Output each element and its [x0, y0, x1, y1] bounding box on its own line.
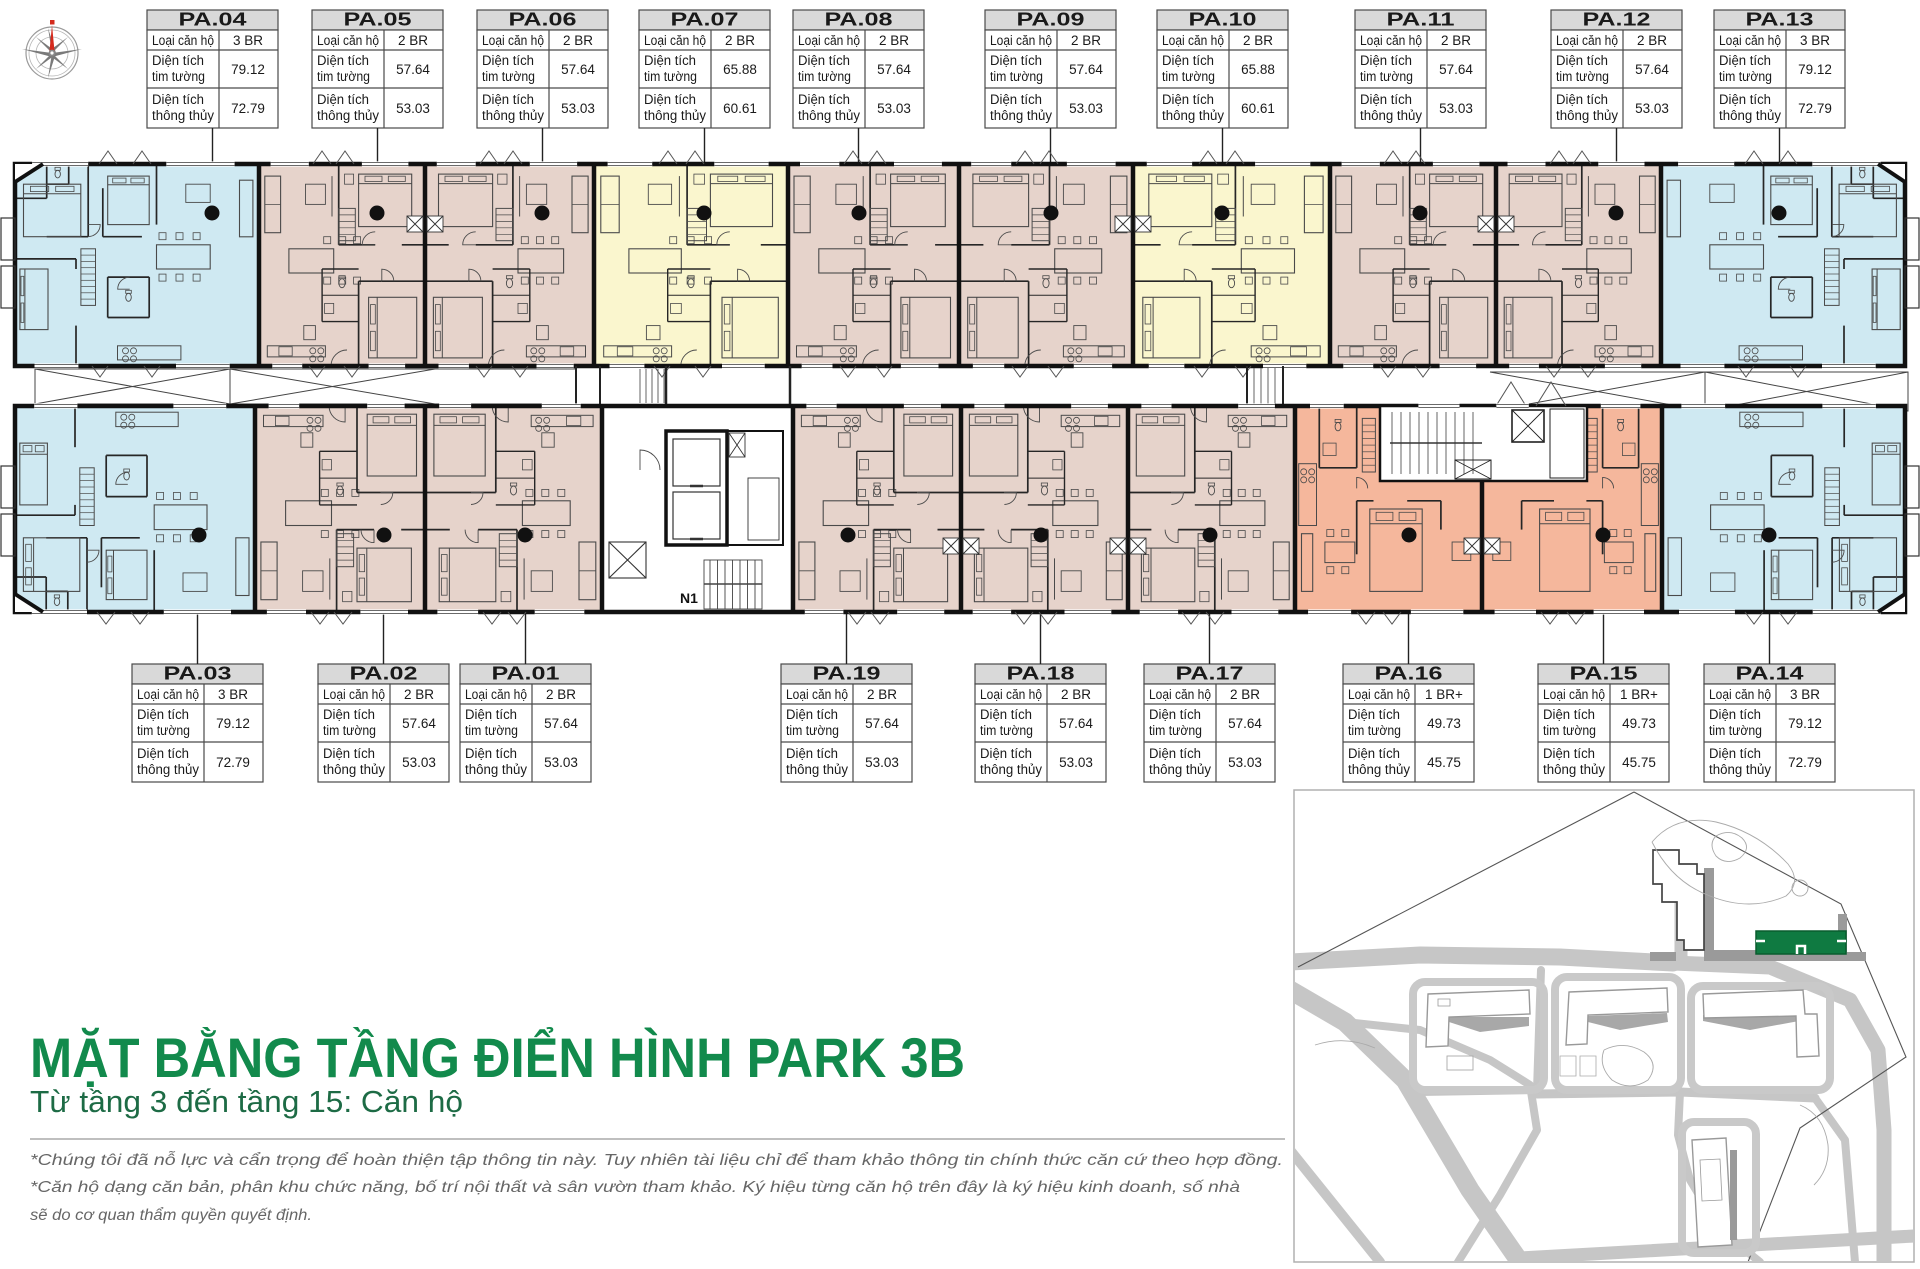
svg-text:Diện tích: Diện tích: [1360, 92, 1412, 107]
svg-text:Loại căn hộ: Loại căn hộ: [323, 687, 385, 702]
svg-text:Diện tích: Diện tích: [1709, 746, 1761, 761]
svg-text:tim tường: tim tường: [798, 69, 851, 84]
svg-text:PA.09: PA.09: [1017, 10, 1085, 30]
svg-text:tim tường: tim tường: [644, 69, 697, 84]
svg-text:2 BR: 2 BR: [404, 687, 434, 702]
svg-text:Loại căn hộ: Loại căn hộ: [1162, 33, 1224, 48]
svg-text:thông thủy: thông thủy: [1719, 108, 1781, 123]
svg-text:72.79: 72.79: [1798, 101, 1832, 116]
svg-text:*Chúng tôi đã nỗ lực và cẩn tr: *Chúng tôi đã nỗ lực và cẩn trọng để hoà…: [30, 1152, 1283, 1169]
svg-text:PA.04: PA.04: [179, 10, 247, 30]
svg-text:Loại căn hộ: Loại căn hộ: [317, 33, 379, 48]
svg-text:53.03: 53.03: [1439, 101, 1473, 116]
svg-text:thông thủy: thông thủy: [1543, 762, 1605, 777]
svg-text:53.03: 53.03: [877, 101, 911, 116]
svg-text:Diện tích: Diện tích: [1719, 53, 1771, 68]
svg-text:MẶT BẰNG TẦNG ĐIỂN HÌNH PARK 3: MẶT BẰNG TẦNG ĐIỂN HÌNH PARK 3B: [30, 1026, 965, 1089]
svg-text:tim tường: tim tường: [317, 69, 370, 84]
svg-text:2 BR: 2 BR: [867, 687, 897, 702]
svg-text:Loại căn hộ: Loại căn hộ: [1348, 687, 1410, 702]
svg-text:PA.19: PA.19: [813, 664, 881, 684]
svg-text:Diện tích: Diện tích: [482, 53, 534, 68]
svg-text:tim tường: tim tường: [1162, 69, 1215, 84]
svg-text:PA.07: PA.07: [671, 10, 739, 30]
svg-text:Diện tích: Diện tích: [137, 707, 189, 722]
svg-text:Diện tích: Diện tích: [1719, 92, 1771, 107]
svg-text:49.73: 49.73: [1622, 716, 1656, 731]
svg-text:Diện tích: Diện tích: [1556, 53, 1608, 68]
svg-text:thông thủy: thông thủy: [990, 108, 1052, 123]
svg-text:Diện tích: Diện tích: [644, 53, 696, 68]
svg-text:sẽ do cơ quan thẩm quyền quyết: sẽ do cơ quan thẩm quyền quyết định.: [30, 1207, 312, 1224]
svg-text:Diện tích: Diện tích: [1543, 707, 1595, 722]
svg-text:tim tường: tim tường: [1543, 723, 1596, 738]
svg-text:79.12: 79.12: [231, 62, 265, 77]
svg-text:1 BR+: 1 BR+: [1620, 687, 1658, 702]
svg-text:thông thủy: thông thủy: [1149, 762, 1211, 777]
svg-text:57.64: 57.64: [1069, 62, 1103, 77]
svg-text:60.61: 60.61: [1241, 101, 1275, 116]
svg-text:2 BR: 2 BR: [879, 33, 909, 48]
svg-text:2 BR: 2 BR: [546, 687, 576, 702]
svg-text:thông thủy: thông thủy: [1709, 762, 1771, 777]
svg-text:Diện tích: Diện tích: [1162, 53, 1214, 68]
svg-text:Loại căn hộ: Loại căn hộ: [980, 687, 1042, 702]
svg-text:57.64: 57.64: [865, 716, 899, 731]
svg-text:Diện tích: Diện tích: [990, 92, 1042, 107]
svg-text:PA.02: PA.02: [350, 664, 418, 684]
svg-text:PA.06: PA.06: [509, 10, 577, 30]
svg-text:60.61: 60.61: [723, 101, 757, 116]
svg-text:thông thủy: thông thủy: [644, 108, 706, 123]
svg-text:53.03: 53.03: [396, 101, 430, 116]
svg-text:Diện tích: Diện tích: [1709, 707, 1761, 722]
svg-text:Diện tích: Diện tích: [1149, 707, 1201, 722]
svg-text:Diện tích: Diện tích: [786, 746, 838, 761]
svg-text:49.73: 49.73: [1427, 716, 1461, 731]
svg-text:Diện tích: Diện tích: [465, 707, 517, 722]
svg-text:65.88: 65.88: [723, 62, 757, 77]
svg-text:thông thủy: thông thủy: [1360, 108, 1422, 123]
svg-text:Diện tích: Diện tích: [990, 53, 1042, 68]
svg-text:57.64: 57.64: [544, 716, 578, 731]
svg-text:53.03: 53.03: [561, 101, 595, 116]
svg-text:57.64: 57.64: [1059, 716, 1093, 731]
svg-text:Diện tích: Diện tích: [152, 53, 204, 68]
svg-text:thông thủy: thông thủy: [137, 762, 199, 777]
svg-text:Diện tích: Diện tích: [137, 746, 189, 761]
svg-text:Diện tích: Diện tích: [152, 92, 204, 107]
svg-text:72.79: 72.79: [231, 101, 265, 116]
svg-text:Diện tích: Diện tích: [323, 707, 375, 722]
svg-text:thông thủy: thông thủy: [1556, 108, 1618, 123]
svg-text:Diện tích: Diện tích: [323, 746, 375, 761]
svg-text:2 BR: 2 BR: [398, 33, 428, 48]
svg-text:57.64: 57.64: [877, 62, 911, 77]
svg-text:2 BR: 2 BR: [1441, 33, 1471, 48]
svg-text:53.03: 53.03: [1069, 101, 1103, 116]
svg-text:tim tường: tim tường: [1149, 723, 1202, 738]
svg-text:Loại căn hộ: Loại căn hộ: [1709, 687, 1771, 702]
svg-text:Diện tích: Diện tích: [317, 53, 369, 68]
svg-text:Diện tích: Diện tích: [786, 707, 838, 722]
svg-text:Diện tích: Diện tích: [1543, 746, 1595, 761]
svg-text:thông thủy: thông thủy: [1348, 762, 1410, 777]
svg-text:Diện tích: Diện tích: [1149, 746, 1201, 761]
svg-text:thông thủy: thông thủy: [482, 108, 544, 123]
svg-text:PA.05: PA.05: [344, 10, 412, 30]
svg-text:Diện tích: Diện tích: [482, 92, 534, 107]
svg-text:Diện tích: Diện tích: [980, 707, 1032, 722]
svg-text:57.64: 57.64: [402, 716, 436, 731]
svg-text:PA.10: PA.10: [1189, 10, 1257, 30]
svg-text:Diện tích: Diện tích: [980, 746, 1032, 761]
svg-text:Loại căn hộ: Loại căn hộ: [1543, 687, 1605, 702]
svg-text:79.12: 79.12: [1788, 716, 1822, 731]
svg-text:Diện tích: Diện tích: [798, 53, 850, 68]
svg-text:3 BR: 3 BR: [1800, 33, 1830, 48]
svg-text:Loại căn hộ: Loại căn hộ: [1149, 687, 1211, 702]
svg-text:Loại căn hộ: Loại căn hộ: [990, 33, 1052, 48]
svg-text:Diện tích: Diện tích: [798, 92, 850, 107]
svg-text:2 BR: 2 BR: [1243, 33, 1273, 48]
svg-text:2 BR: 2 BR: [563, 33, 593, 48]
svg-text:79.12: 79.12: [216, 716, 250, 731]
svg-text:Loại căn hộ: Loại căn hộ: [482, 33, 544, 48]
svg-text:57.64: 57.64: [1635, 62, 1669, 77]
svg-text:Loại căn hộ: Loại căn hộ: [137, 687, 199, 702]
svg-text:PA.15: PA.15: [1570, 664, 1638, 684]
svg-text:tim tường: tim tường: [482, 69, 535, 84]
svg-text:thông thủy: thông thủy: [323, 762, 385, 777]
svg-text:53.03: 53.03: [1635, 101, 1669, 116]
svg-text:79.12: 79.12: [1798, 62, 1832, 77]
svg-text:Loại căn hộ: Loại căn hộ: [152, 33, 214, 48]
svg-text:Loại căn hộ: Loại căn hộ: [644, 33, 706, 48]
svg-text:Loại căn hộ: Loại căn hộ: [465, 687, 527, 702]
svg-text:thông thủy: thông thủy: [1162, 108, 1224, 123]
svg-text:3 BR: 3 BR: [1790, 687, 1820, 702]
svg-text:thông thủy: thông thủy: [465, 762, 527, 777]
svg-text:tim tường: tim tường: [137, 723, 190, 738]
svg-text:PA.14: PA.14: [1736, 664, 1804, 684]
svg-text:57.64: 57.64: [1228, 716, 1262, 731]
svg-text:PA.11: PA.11: [1387, 10, 1455, 30]
svg-text:PA.12: PA.12: [1583, 10, 1651, 30]
svg-text:PA.18: PA.18: [1007, 664, 1075, 684]
svg-text:53.03: 53.03: [865, 755, 899, 770]
svg-text:57.64: 57.64: [1439, 62, 1473, 77]
svg-text:53.03: 53.03: [1059, 755, 1093, 770]
svg-text:2 BR: 2 BR: [1637, 33, 1667, 48]
svg-text:PA.16: PA.16: [1375, 664, 1443, 684]
svg-text:tim tường: tim tường: [1348, 723, 1401, 738]
svg-text:2 BR: 2 BR: [1061, 687, 1091, 702]
svg-text:Diện tích: Diện tích: [1360, 53, 1412, 68]
svg-text:57.64: 57.64: [396, 62, 430, 77]
svg-text:Diện tích: Diện tích: [1348, 746, 1400, 761]
svg-text:tim tường: tim tường: [1709, 723, 1762, 738]
svg-text:PA.03: PA.03: [164, 664, 232, 684]
svg-text:45.75: 45.75: [1427, 755, 1461, 770]
svg-text:53.03: 53.03: [1228, 755, 1262, 770]
svg-text:57.64: 57.64: [561, 62, 595, 77]
svg-text:thông thủy: thông thủy: [798, 108, 860, 123]
svg-text:thông thủy: thông thủy: [317, 108, 379, 123]
svg-text:Diện tích: Diện tích: [1162, 92, 1214, 107]
svg-text:thông thủy: thông thủy: [980, 762, 1042, 777]
svg-text:tim tường: tim tường: [465, 723, 518, 738]
svg-text:thông thủy: thông thủy: [786, 762, 848, 777]
svg-text:53.03: 53.03: [544, 755, 578, 770]
svg-text:Diện tích: Diện tích: [1556, 92, 1608, 107]
svg-text:tim tường: tim tường: [990, 69, 1043, 84]
svg-text:tim tường: tim tường: [786, 723, 839, 738]
svg-text:2 BR: 2 BR: [1071, 33, 1101, 48]
svg-text:Diện tích: Diện tích: [1348, 707, 1400, 722]
svg-text:Loại căn hộ: Loại căn hộ: [1556, 33, 1618, 48]
svg-text:tim tường: tim tường: [323, 723, 376, 738]
svg-text:PA.17: PA.17: [1176, 664, 1244, 684]
svg-text:72.79: 72.79: [1788, 755, 1822, 770]
svg-text:65.88: 65.88: [1241, 62, 1275, 77]
svg-text:*Căn hộ dạng căn bản, phân khu: *Căn hộ dạng căn bản, phân khu chức năng…: [30, 1179, 1240, 1196]
svg-text:tim tường: tim tường: [1719, 69, 1772, 84]
svg-text:thông thủy: thông thủy: [152, 108, 214, 123]
svg-text:tim tường: tim tường: [1556, 69, 1609, 84]
svg-text:Loại căn hộ: Loại căn hộ: [798, 33, 860, 48]
svg-text:tim tường: tim tường: [1360, 69, 1413, 84]
svg-text:53.03: 53.03: [402, 755, 436, 770]
svg-text:Loại căn hộ: Loại căn hộ: [786, 687, 848, 702]
svg-text:tim tường: tim tường: [152, 69, 205, 84]
svg-text:Từ tầng 3 đến tầng 15: Căn hộ: Từ tầng 3 đến tầng 15: Căn hộ: [30, 1084, 463, 1119]
svg-text:1 BR+: 1 BR+: [1425, 687, 1463, 702]
svg-text:2 BR: 2 BR: [725, 33, 755, 48]
svg-text:Diện tích: Diện tích: [465, 746, 517, 761]
svg-text:45.75: 45.75: [1622, 755, 1656, 770]
svg-text:Diện tích: Diện tích: [644, 92, 696, 107]
svg-text:PA.01: PA.01: [492, 664, 560, 684]
svg-text:3 BR: 3 BR: [233, 33, 263, 48]
svg-text:Loại căn hộ: Loại căn hộ: [1719, 33, 1781, 48]
svg-text:Diện tích: Diện tích: [317, 92, 369, 107]
svg-text:tim tường: tim tường: [980, 723, 1033, 738]
svg-text:2 BR: 2 BR: [1230, 687, 1260, 702]
svg-text:PA.08: PA.08: [825, 10, 893, 30]
svg-text:72.79: 72.79: [216, 755, 250, 770]
svg-text:Loại căn hộ: Loại căn hộ: [1360, 33, 1422, 48]
svg-text:3 BR: 3 BR: [218, 687, 248, 702]
svg-text:N1: N1: [680, 590, 698, 606]
svg-text:PA.13: PA.13: [1746, 10, 1814, 30]
